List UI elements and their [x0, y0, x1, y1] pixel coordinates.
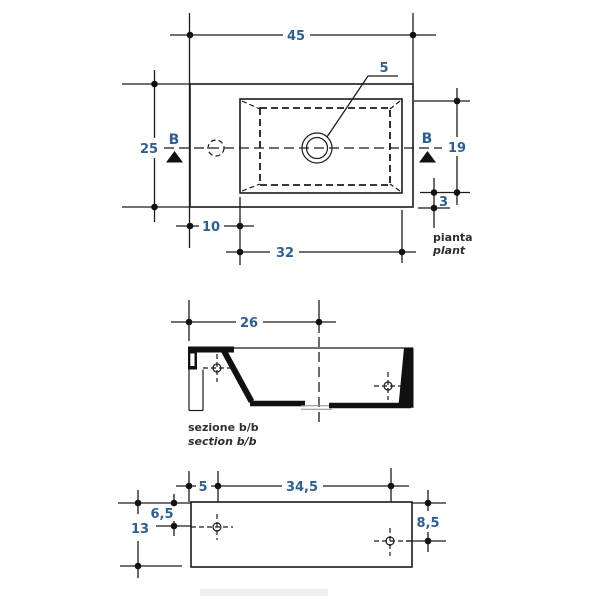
back-fixing-hole-left: [191, 514, 233, 540]
dim-endpoint-dot: [171, 523, 178, 530]
dim-endpoint-dot: [187, 32, 194, 39]
basin-corner-dashes: [242, 101, 400, 191]
section-profile: [188, 347, 414, 411]
dim-34-5-label: 34,5: [286, 480, 318, 495]
plan-caption-en: plant: [432, 244, 466, 257]
dim-endpoint-dot: [135, 500, 142, 507]
back-dimension-lines: [118, 468, 446, 578]
drain-dia-label: 5: [379, 61, 388, 76]
dim-endpoint-dot: [187, 223, 194, 230]
plan-outline: [190, 84, 413, 207]
dim-endpoint-dot: [237, 249, 244, 256]
dim-endpoint-dot: [215, 483, 222, 490]
basin-bottom-dashed-outline: [260, 108, 390, 185]
dim-endpoint-dot: [151, 81, 158, 88]
dim-endpoint-dot: [135, 563, 142, 570]
corner-dash: [390, 101, 400, 109]
dim-endpoint-dot: [186, 319, 193, 326]
technical-drawing-page: 45 25 19 3 10 32 5 B B pianta plant: [0, 0, 600, 600]
back-fixing-hole-right: [374, 528, 412, 556]
dim-endpoint-dot: [431, 189, 438, 196]
corner-dash: [242, 184, 260, 191]
section-caption-en: section b/b: [188, 435, 257, 448]
dim-13-label: 13: [131, 522, 149, 537]
plan-view: 45 25 19 3 10 32 5 B B pianta plant: [122, 13, 473, 265]
fixing-hole-symbol-right: [374, 372, 402, 400]
dim-endpoint-dot: [454, 189, 461, 196]
section-view: 26 sezione b/b section b/b: [171, 300, 414, 448]
dim-endpoint-dot: [186, 483, 193, 490]
dim-endpoint-dot: [171, 500, 178, 507]
section-arrow-left: [166, 151, 183, 163]
corner-dash: [390, 184, 400, 191]
dim-endpoint-dot: [316, 319, 323, 326]
dim-3-label: 3: [439, 195, 448, 210]
technical-drawing-canvas: 45 25 19 3 10 32 5 B B pianta plant: [0, 0, 600, 600]
dim-endpoint-dot: [431, 205, 438, 212]
section-marker-b-left: B: [169, 132, 180, 148]
dim-32-label: 32: [276, 246, 294, 261]
dim-19-label: 19: [448, 141, 466, 156]
basin-slope-wall: [224, 351, 252, 402]
dim-endpoint-dot: [410, 32, 417, 39]
corner-dash: [242, 101, 260, 109]
plan-dimension-dots: [151, 32, 460, 256]
dim-endpoint-dot: [399, 249, 406, 256]
dim-6-5-label: 6,5: [150, 507, 173, 522]
section-marker-b-right: B: [422, 131, 433, 147]
dim-endpoint-dot: [388, 483, 395, 490]
dim-endpoint-dot: [151, 204, 158, 211]
back-view: 5 34,5 13 6,5 8,5: [118, 468, 446, 596]
drain-leader-line: [327, 76, 398, 137]
dim-endpoint-dot: [237, 223, 244, 230]
dim-10-label: 10: [202, 220, 220, 235]
cropped-caption-remnant: [200, 589, 328, 596]
section-caption-it: sezione b/b: [188, 421, 259, 434]
basin-rim-outline: [240, 99, 402, 193]
dim-25-label: 25: [140, 142, 158, 157]
dim-endpoint-dot: [425, 538, 432, 545]
dim-endpoint-dot: [425, 500, 432, 507]
dim-45-label: 45: [287, 29, 305, 44]
dim-8-5-label: 8,5: [416, 516, 439, 531]
plan-caption-it: pianta: [433, 231, 473, 244]
back-outline: [191, 502, 412, 567]
section-arrow-right: [419, 151, 436, 163]
dim-endpoint-dot: [454, 98, 461, 105]
dim-5-label: 5: [198, 480, 207, 495]
dim-26-label: 26: [240, 316, 258, 331]
basin-right-wall: [399, 348, 414, 408]
rim-left-slot: [190, 354, 194, 367]
